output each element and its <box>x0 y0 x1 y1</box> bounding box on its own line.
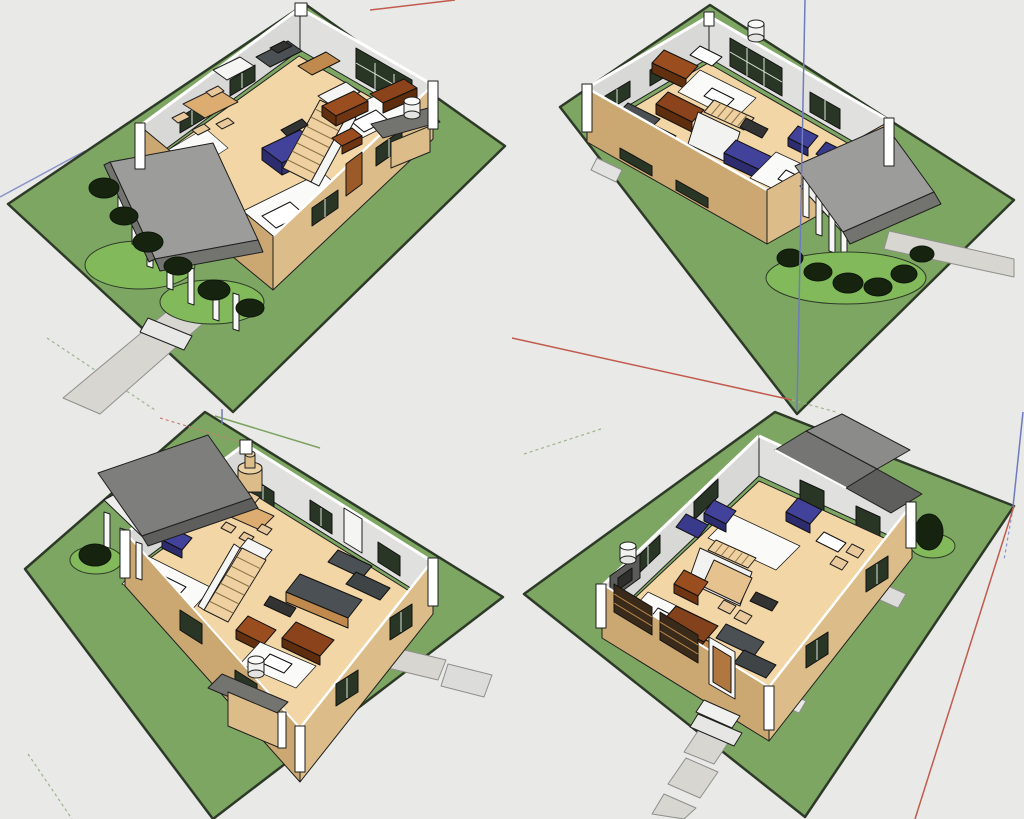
porch-column <box>104 512 110 550</box>
rear-bay-post <box>278 712 286 748</box>
vent-base <box>620 556 636 564</box>
bush <box>864 278 892 296</box>
corner-post <box>704 12 714 26</box>
corner-post <box>295 726 305 772</box>
bush <box>110 207 138 225</box>
corner-post <box>906 502 916 548</box>
corner-post <box>135 123 145 169</box>
bush <box>891 265 917 283</box>
porch-column <box>136 542 142 580</box>
corner-post <box>582 84 592 132</box>
bush <box>133 232 163 252</box>
vent-base <box>404 111 420 119</box>
corner-post <box>295 3 307 16</box>
vent-base <box>248 670 264 678</box>
bush <box>804 263 832 281</box>
bush <box>915 514 943 550</box>
bush <box>164 257 192 275</box>
bush <box>79 544 111 566</box>
vent-top <box>404 97 420 105</box>
bush <box>89 178 119 198</box>
corner-post <box>428 558 438 606</box>
bush <box>910 246 934 262</box>
corner-post <box>596 584 606 628</box>
corner-post <box>120 530 130 578</box>
vent-top <box>748 20 764 28</box>
corner-post <box>428 81 438 129</box>
bush <box>833 273 863 293</box>
model-viewport <box>0 0 1024 819</box>
vent-top <box>620 542 636 550</box>
vent-top <box>248 656 264 664</box>
corner-post <box>884 118 894 166</box>
vent-base <box>748 34 764 42</box>
corner-post <box>240 440 252 454</box>
bush <box>236 299 264 317</box>
porch-column <box>188 267 194 305</box>
canvas <box>0 0 1024 819</box>
corner-post <box>764 686 774 730</box>
bush <box>198 280 230 300</box>
